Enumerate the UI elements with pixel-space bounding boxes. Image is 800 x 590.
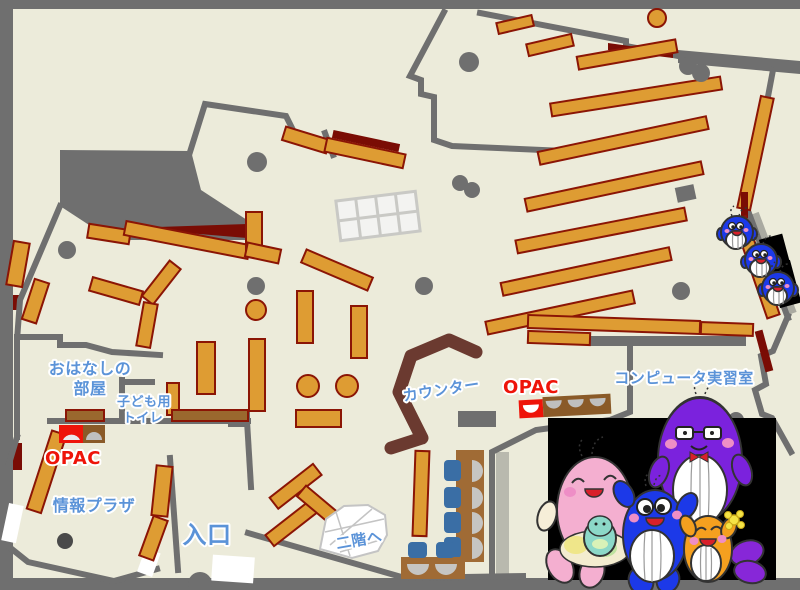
pillar	[247, 152, 267, 172]
pupil	[657, 504, 665, 512]
pillar	[58, 241, 76, 259]
round-table	[297, 375, 319, 397]
cheek	[744, 228, 749, 232]
label-story-room-line1: おはなしの	[49, 359, 132, 378]
round-table	[336, 375, 358, 397]
grid-table	[336, 191, 420, 240]
flower-petal	[726, 523, 733, 530]
label-entrance: 入口	[183, 521, 232, 549]
shelf	[351, 306, 367, 358]
pupil	[772, 281, 775, 284]
chair	[444, 460, 461, 481]
baby-head	[588, 516, 612, 536]
pupil	[643, 505, 651, 513]
mouth	[700, 539, 716, 546]
shelf	[413, 451, 430, 536]
wall-computer-room-top	[590, 336, 746, 346]
pupil	[731, 225, 734, 228]
mouth	[773, 287, 783, 292]
label-computer-room: コンピュータ実習室	[614, 369, 754, 387]
pupil	[755, 253, 758, 256]
shelf	[297, 291, 313, 343]
cheek	[665, 439, 677, 449]
counter-back-block	[458, 411, 496, 427]
pillar	[415, 277, 433, 295]
label-kids-toilet-line1: 子ども用	[117, 395, 171, 410]
shelf	[249, 339, 265, 411]
pillar	[692, 64, 710, 82]
cheek	[690, 537, 699, 545]
dark-red-strip	[741, 192, 748, 218]
cheek	[718, 535, 727, 543]
cheek	[564, 487, 576, 497]
wall-shelf	[172, 410, 248, 421]
pillar	[464, 182, 480, 198]
baby-bib	[592, 539, 608, 549]
wall-entrance-right	[247, 421, 251, 487]
pillar	[247, 277, 265, 295]
computer-room-shelf	[528, 331, 590, 345]
baby-eye	[603, 523, 606, 526]
eye	[683, 431, 687, 435]
chair	[444, 487, 461, 508]
pupil	[780, 281, 783, 284]
wall-shelf	[66, 410, 104, 421]
cheek	[768, 256, 773, 260]
flower-petal	[725, 512, 732, 519]
label-info-plaza: 情報プラザ	[53, 496, 136, 515]
chair	[436, 542, 455, 558]
label-kids-toilet-line2: トイレ	[123, 411, 164, 426]
pillar	[459, 52, 479, 72]
mouth	[756, 259, 766, 264]
shelf	[197, 342, 215, 394]
round-table	[246, 300, 266, 320]
cheek	[629, 514, 639, 523]
entrance-door-gap	[211, 555, 255, 584]
opac-left-station	[59, 425, 105, 443]
cheek	[725, 229, 730, 233]
label-story-room-line2: 部屋	[73, 379, 106, 398]
pillar	[672, 282, 690, 300]
mouth	[732, 231, 742, 236]
eye	[710, 431, 714, 435]
cheek	[766, 285, 771, 289]
chair	[444, 512, 461, 533]
library-floor-map: おはなしの 部屋 子ども用 トイレ OPAC 情報プラザ 入口 二階へ カウンタ…	[0, 0, 800, 590]
frame-top	[0, 0, 800, 9]
baby-eye	[595, 523, 598, 526]
pillar-dark	[57, 533, 73, 549]
pupil	[739, 225, 742, 228]
cheek	[722, 438, 734, 448]
cheek	[785, 284, 790, 288]
round-table	[648, 9, 666, 27]
label-opac-center: OPAC	[503, 377, 559, 398]
pupil	[763, 253, 766, 256]
floor-map-svg: おはなしの 部屋 子ども用 トイレ OPAC 情報プラザ 入口 二階へ カウンタ…	[0, 0, 800, 590]
chair	[408, 542, 427, 558]
flower-petal	[737, 511, 744, 518]
shelf	[296, 410, 341, 427]
desk-wall-shadow	[496, 452, 509, 574]
opac-terminal-red	[59, 425, 83, 443]
flower-petal	[738, 522, 745, 529]
label-opac-left: OPAC	[45, 448, 101, 469]
cheek	[749, 257, 754, 261]
computer-room-shelf	[701, 322, 753, 336]
